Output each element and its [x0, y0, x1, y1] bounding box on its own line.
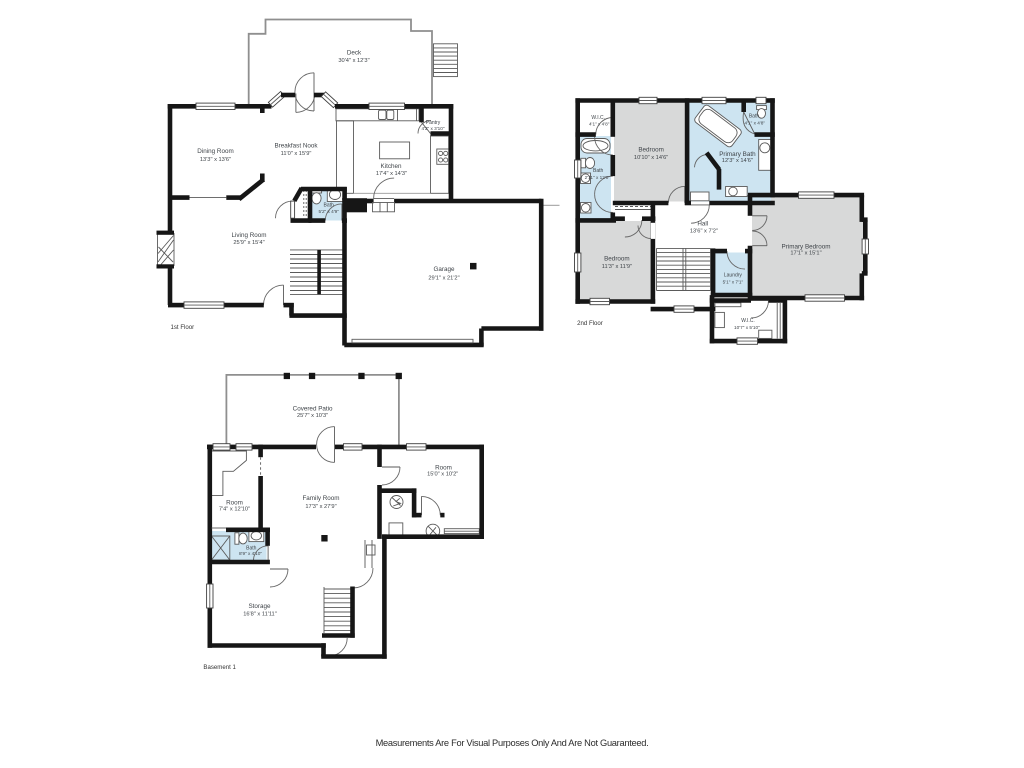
svg-text:Hall: Hall	[697, 220, 708, 227]
svg-text:Kitchen: Kitchen	[380, 163, 402, 170]
svg-text:Dining Room: Dining Room	[197, 148, 233, 155]
svg-text:Breakfast Nook: Breakfast Nook	[274, 142, 318, 149]
svg-text:Measurements Are For Visual Pu: Measurements Are For Visual Purposes Onl…	[376, 738, 649, 748]
svg-text:25'7" x 10'3": 25'7" x 10'3"	[297, 413, 328, 419]
svg-text:11'3" x 11'9": 11'3" x 11'9"	[602, 264, 632, 270]
svg-text:13'3" x 13'6": 13'3" x 13'6"	[200, 157, 231, 163]
svg-text:10'10" x 14'6": 10'10" x 14'6"	[634, 155, 668, 161]
svg-text:17'3" x 27'9": 17'3" x 27'9"	[305, 504, 336, 510]
svg-text:Family Room: Family Room	[302, 495, 339, 502]
svg-text:17'1" x 15'1": 17'1" x 15'1"	[790, 251, 821, 257]
svg-text:Deck: Deck	[347, 50, 362, 57]
svg-text:17'4" x 14'3": 17'4" x 14'3"	[376, 171, 407, 177]
svg-text:Bath: Bath	[324, 203, 335, 209]
svg-text:1st Floor: 1st Floor	[171, 324, 195, 331]
svg-text:5'1" x 7'1": 5'1" x 7'1"	[723, 279, 744, 284]
svg-text:Storage: Storage	[248, 603, 271, 610]
svg-text:7'4" x 12'10": 7'4" x 12'10"	[219, 506, 250, 512]
svg-text:10'7" x 5'10": 10'7" x 5'10"	[734, 325, 760, 330]
svg-text:W.I.C.: W.I.C.	[591, 115, 605, 121]
svg-text:Primary Bath: Primary Bath	[719, 151, 756, 158]
svg-text:Garage: Garage	[433, 266, 455, 273]
svg-text:15'0" x 10'2": 15'0" x 10'2"	[427, 472, 458, 478]
svg-text:2nd Floor: 2nd Floor	[577, 320, 603, 327]
svg-text:Room: Room	[435, 464, 452, 471]
svg-text:4'1" x 4'8": 4'1" x 4'8"	[589, 121, 610, 126]
svg-text:Basement 1: Basement 1	[203, 664, 236, 671]
svg-text:30'4" x 12'3": 30'4" x 12'3"	[338, 58, 369, 64]
svg-text:25'9" x 15'4": 25'9" x 15'4"	[233, 240, 264, 246]
svg-text:5'2" x 4'9": 5'2" x 4'9"	[318, 209, 339, 214]
svg-text:Pantry: Pantry	[426, 120, 441, 126]
svg-text:2'11" x 12'0": 2'11" x 12'0"	[585, 175, 611, 180]
svg-text:16'8" x 11'11": 16'8" x 11'11"	[243, 611, 277, 617]
svg-text:4'2" x 3'10": 4'2" x 3'10"	[421, 126, 444, 131]
svg-text:13'6" x 7'2": 13'6" x 7'2"	[690, 229, 718, 235]
svg-text:W.I.C.: W.I.C.	[741, 318, 755, 324]
svg-text:Living Room: Living Room	[232, 232, 267, 239]
svg-text:Covered Patio: Covered Patio	[293, 406, 333, 413]
svg-text:29'1" x 21'2": 29'1" x 21'2"	[428, 275, 459, 281]
svg-text:Laundry: Laundry	[724, 272, 743, 278]
svg-text:Bedroom: Bedroom	[638, 146, 664, 153]
svg-text:Bedroom: Bedroom	[604, 255, 630, 262]
svg-text:11'0" x 15'9": 11'0" x 15'9"	[281, 151, 312, 157]
svg-text:Bath: Bath	[593, 168, 604, 174]
svg-text:8'9" x 4'10": 8'9" x 4'10"	[239, 551, 262, 556]
svg-text:Bath: Bath	[749, 113, 760, 119]
svg-text:Primary Bedroom: Primary Bedroom	[782, 244, 831, 251]
svg-text:12'3" x 14'6": 12'3" x 14'6"	[722, 158, 753, 164]
svg-text:4'1" x 4'8": 4'1" x 4'8"	[745, 121, 766, 126]
